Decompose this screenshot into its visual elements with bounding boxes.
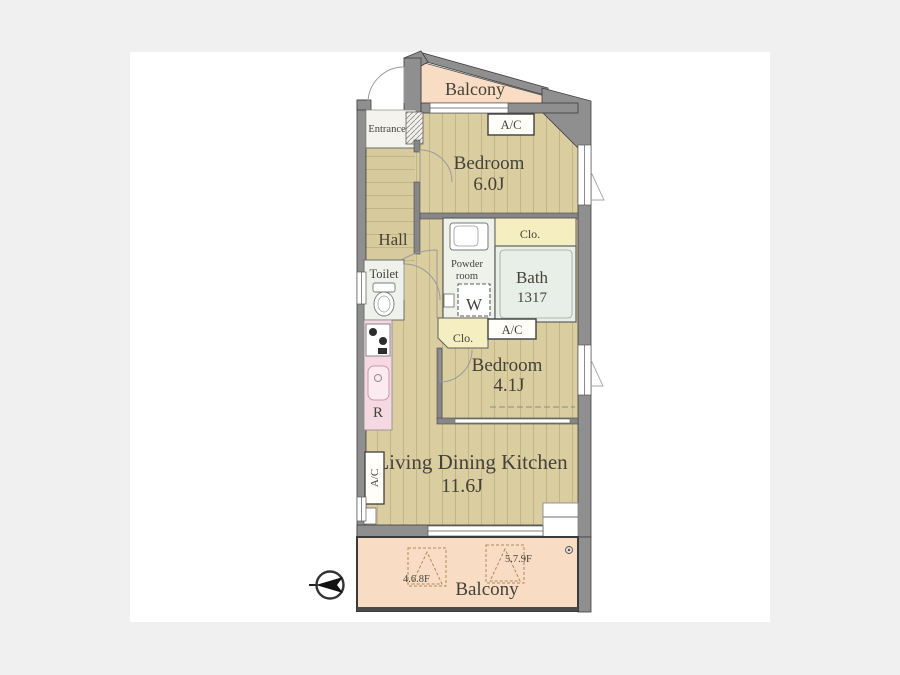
hatch-right-label: 5.7.9F [505, 554, 532, 565]
powder-room-label-2: room [456, 271, 478, 282]
washing-machine: W [458, 284, 490, 316]
closet-lower-label: Clo. [453, 331, 473, 345]
bedroom4-sliding-door [455, 419, 570, 423]
ldk-label: Living Dining Kitchen [376, 450, 568, 474]
closet-upper: Clo. [495, 218, 576, 246]
wall-topleft-vertical [404, 58, 421, 113]
toilet-label: Toilet [370, 267, 400, 281]
fridge-label: R [373, 405, 383, 421]
hatch-left-label: 4.6.8F [403, 574, 430, 585]
ac-label-bedroom6: A/C [501, 118, 522, 132]
sink-icon [368, 366, 389, 400]
closet-upper-label: Clo. [520, 227, 540, 241]
bath: Bath 1317 [495, 246, 576, 322]
window-ldk-balcony [428, 526, 543, 536]
washbasin-icon [450, 223, 488, 250]
north-arrow-icon [309, 572, 344, 599]
ac-bedroom4: A/C [488, 319, 536, 339]
floor-plan-page: Balcony Entrance A/C Bedroom 6.0J [0, 0, 900, 675]
stove-icon [366, 324, 390, 356]
wall-entrance-stub [357, 100, 371, 110]
bedroom6-size: 6.0J [473, 174, 504, 195]
window-bedroom6-right [578, 145, 604, 205]
bedroom4-label: Bedroom [472, 355, 543, 376]
ldk-size: 11.6J [441, 475, 483, 497]
bedroom4-size: 4.1J [493, 375, 524, 396]
bedroom6-label: Bedroom [454, 153, 525, 174]
entrance-door-arc [368, 67, 404, 103]
ac-label-ldk: A/C [369, 469, 381, 487]
kitchen: R [364, 320, 392, 430]
wall-hall-divider-bottom [414, 182, 420, 254]
balcony-top-label: Balcony [445, 79, 505, 99]
bath-label: Bath [516, 268, 549, 287]
powder-door-mark [444, 294, 454, 307]
ac-ldk: A/C [365, 452, 384, 504]
ac-label-bedroom4: A/C [502, 323, 523, 337]
balcony-step [543, 503, 578, 537]
powder-room-label-1: Powder [451, 259, 484, 270]
window-toilet-left [357, 272, 366, 304]
powder-room: Powder room W [443, 218, 495, 322]
wall-hall-divider-top [414, 140, 420, 152]
toilet-icon [373, 283, 395, 316]
balcony-bottom: 4.6.8F 5.7.9F Balcony [357, 537, 578, 611]
entrance-label: Entrance [368, 124, 406, 135]
closet-lower: Clo. [438, 318, 488, 348]
wall-right-balcony [578, 537, 591, 612]
floor-plan-drawing: Balcony Entrance A/C Bedroom 6.0J [0, 0, 900, 675]
bath-size: 1317 [517, 290, 548, 306]
hall-label: Hall [378, 230, 408, 249]
window-bedroom4-right [578, 345, 603, 395]
window-ldk-left [357, 497, 366, 521]
drain-icon [566, 547, 573, 554]
window-bedroom6-balcony [430, 103, 508, 113]
balcony-bottom-label: Balcony [455, 579, 519, 600]
shoe-cabinet-icon [406, 112, 423, 144]
washer-label: W [466, 295, 483, 314]
